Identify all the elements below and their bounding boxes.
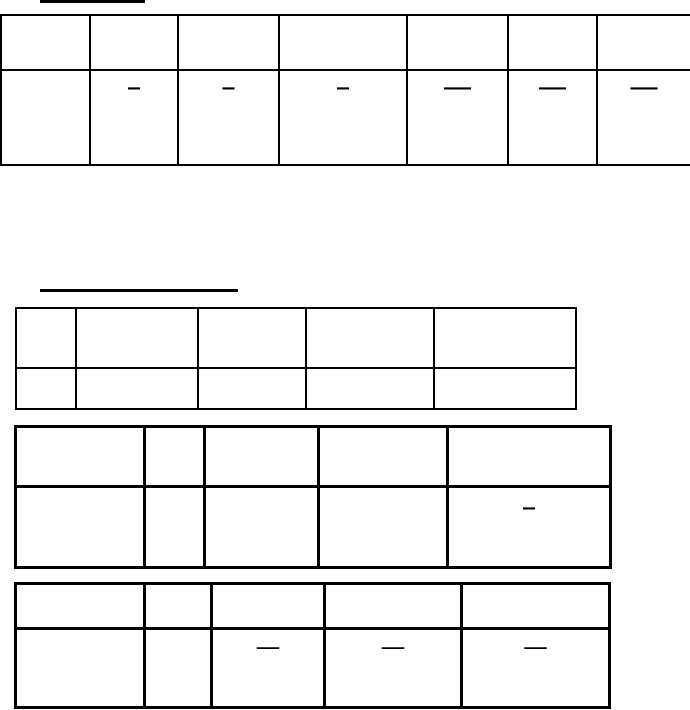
table-cell xyxy=(1,15,90,70)
table-cell xyxy=(16,629,145,708)
table-cell xyxy=(306,368,434,409)
table-cell: — xyxy=(407,70,508,165)
section-1-heading-underline xyxy=(40,0,145,3)
table-cell: — xyxy=(325,629,462,708)
lower-table-1: – xyxy=(14,425,612,569)
table-cell xyxy=(508,15,597,70)
table-cell xyxy=(76,368,198,409)
lower-table-2: — — — xyxy=(14,582,611,709)
table-cell: — xyxy=(597,70,690,165)
table-cell: – xyxy=(178,70,279,165)
section-2-heading-underline xyxy=(40,289,238,292)
table-cell xyxy=(434,368,576,409)
table-row xyxy=(1,15,690,70)
table-cell: — xyxy=(462,629,610,708)
table-cell xyxy=(16,584,145,629)
table-cell xyxy=(76,308,198,368)
table-cell xyxy=(325,584,462,629)
table-cell xyxy=(16,368,76,409)
table-row xyxy=(16,308,576,368)
table-row xyxy=(16,427,611,487)
table-cell: – xyxy=(448,487,611,568)
table-cell xyxy=(434,308,576,368)
table-cell xyxy=(90,15,178,70)
table-cell xyxy=(462,584,610,629)
table-cell: — xyxy=(212,629,325,708)
table-cell xyxy=(145,629,212,708)
table-row: – xyxy=(16,487,611,568)
table-row xyxy=(16,368,576,409)
table-cell xyxy=(407,15,508,70)
table-cell: – xyxy=(279,70,407,165)
table-cell: — xyxy=(508,70,597,165)
table-cell: – xyxy=(90,70,178,165)
table-cell xyxy=(319,487,448,568)
table-cell xyxy=(16,427,145,487)
top-table: – – – — — — xyxy=(0,14,690,166)
table-cell xyxy=(306,308,434,368)
table-cell xyxy=(178,15,279,70)
table-cell xyxy=(198,308,306,368)
table-cell xyxy=(198,368,306,409)
table-row: – – – — — — xyxy=(1,70,690,165)
table-cell xyxy=(205,427,319,487)
table-cell xyxy=(145,427,205,487)
table-row: — — — xyxy=(16,629,610,708)
middle-table xyxy=(15,307,577,410)
table-cell xyxy=(212,584,325,629)
table-cell xyxy=(205,487,319,568)
table-cell xyxy=(597,15,690,70)
table-cell xyxy=(145,487,205,568)
table-cell xyxy=(319,427,448,487)
table-cell xyxy=(145,584,212,629)
table-cell xyxy=(16,308,76,368)
table-cell xyxy=(448,427,611,487)
table-cell xyxy=(16,487,145,568)
table-cell xyxy=(279,15,407,70)
table-row xyxy=(16,584,610,629)
table-cell xyxy=(1,70,90,165)
